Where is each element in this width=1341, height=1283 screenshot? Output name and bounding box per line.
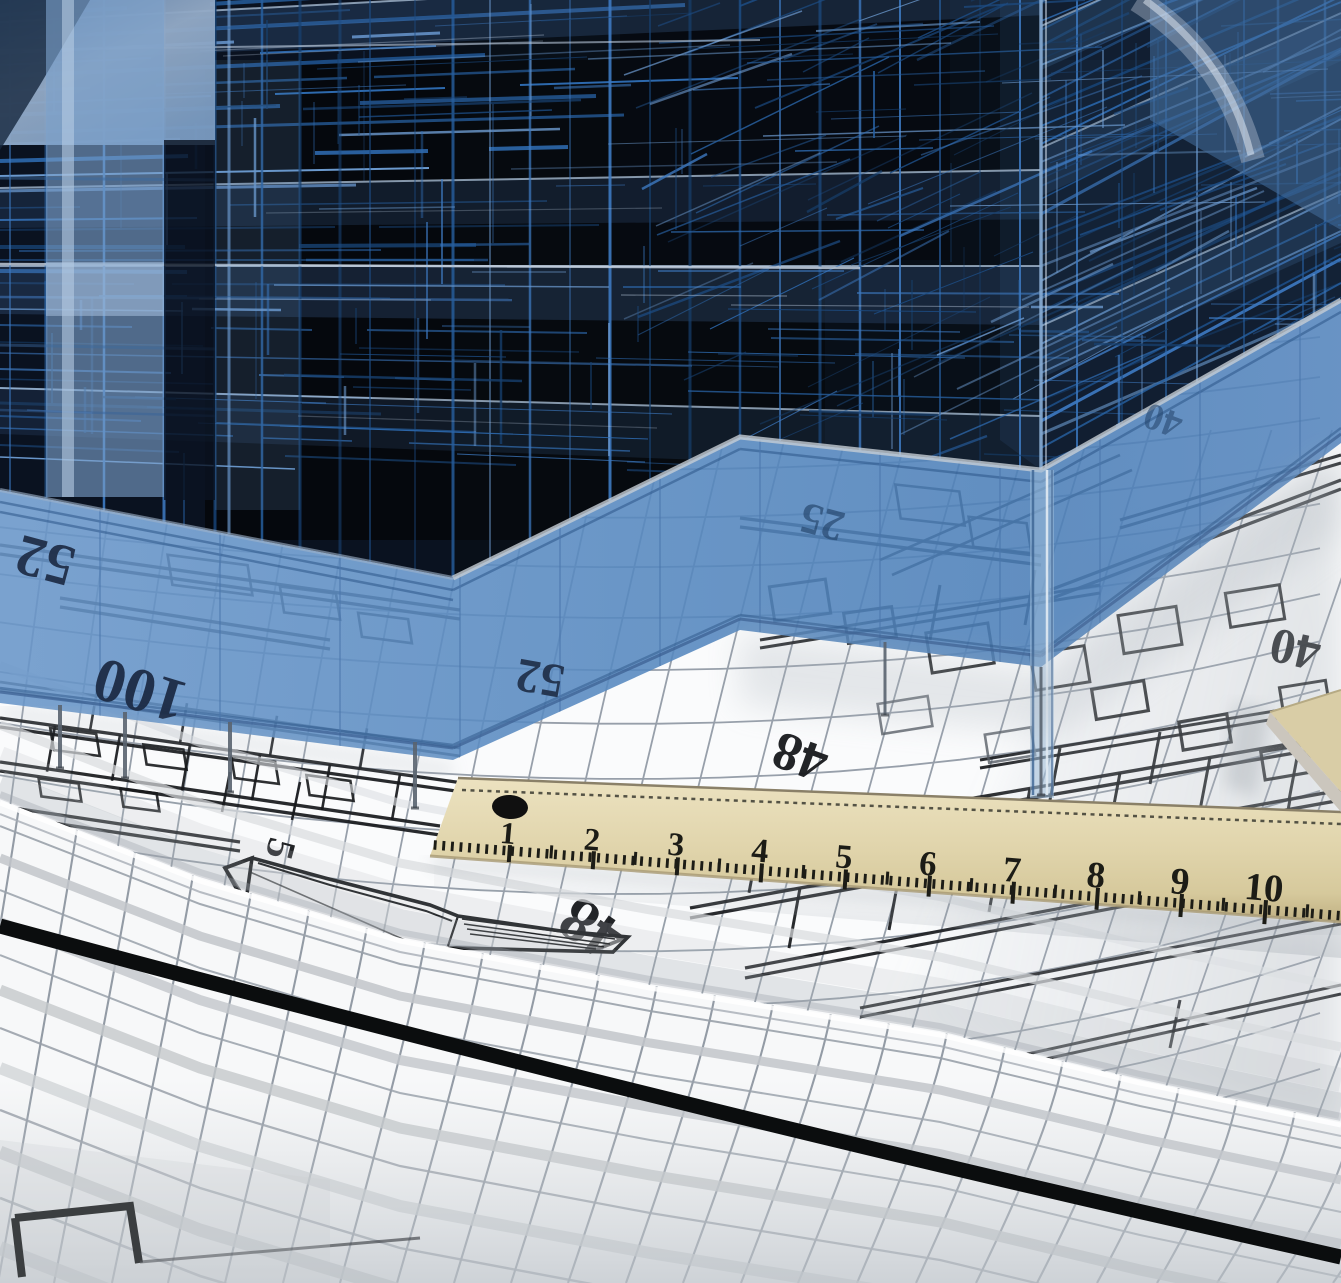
svg-text:52: 52 bbox=[512, 648, 568, 709]
